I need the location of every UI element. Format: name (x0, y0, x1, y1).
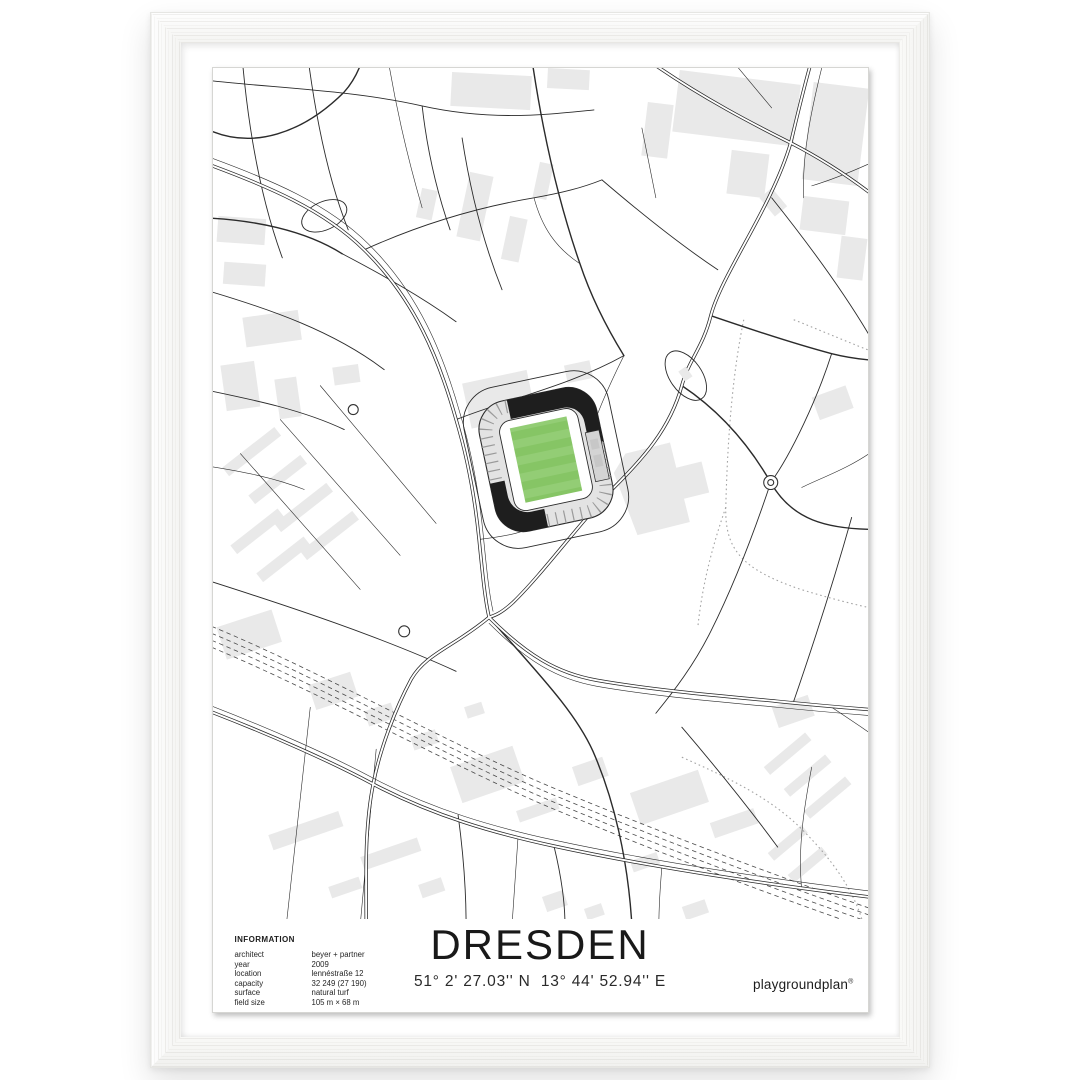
frame-molding-left (151, 13, 181, 1067)
registered-mark: ® (848, 979, 853, 986)
info-row: field size 105 m × 68 m (235, 998, 367, 1008)
poster-paper: INFORMATION architect beyer + partner ye… (212, 67, 869, 1013)
poster-mockup: INFORMATION architect beyer + partner ye… (0, 0, 1080, 1080)
brand-name: playgroundplan (753, 977, 848, 992)
info-label: field size (235, 998, 312, 1008)
city-title: DRESDEN (213, 924, 868, 966)
info-value: 105 m × 68 m (312, 998, 367, 1008)
frame-opening: INFORMATION architect beyer + partner ye… (181, 43, 899, 1037)
city-map (213, 68, 868, 919)
picture-frame: INFORMATION architect beyer + partner ye… (150, 12, 930, 1068)
frame-molding-right (899, 13, 929, 1067)
brand-logo: playgroundplan® (753, 977, 853, 992)
frame-molding-bottom (151, 1037, 929, 1067)
poster-footer: INFORMATION architect beyer + partner ye… (213, 919, 868, 1012)
frame-molding-top (151, 13, 929, 43)
